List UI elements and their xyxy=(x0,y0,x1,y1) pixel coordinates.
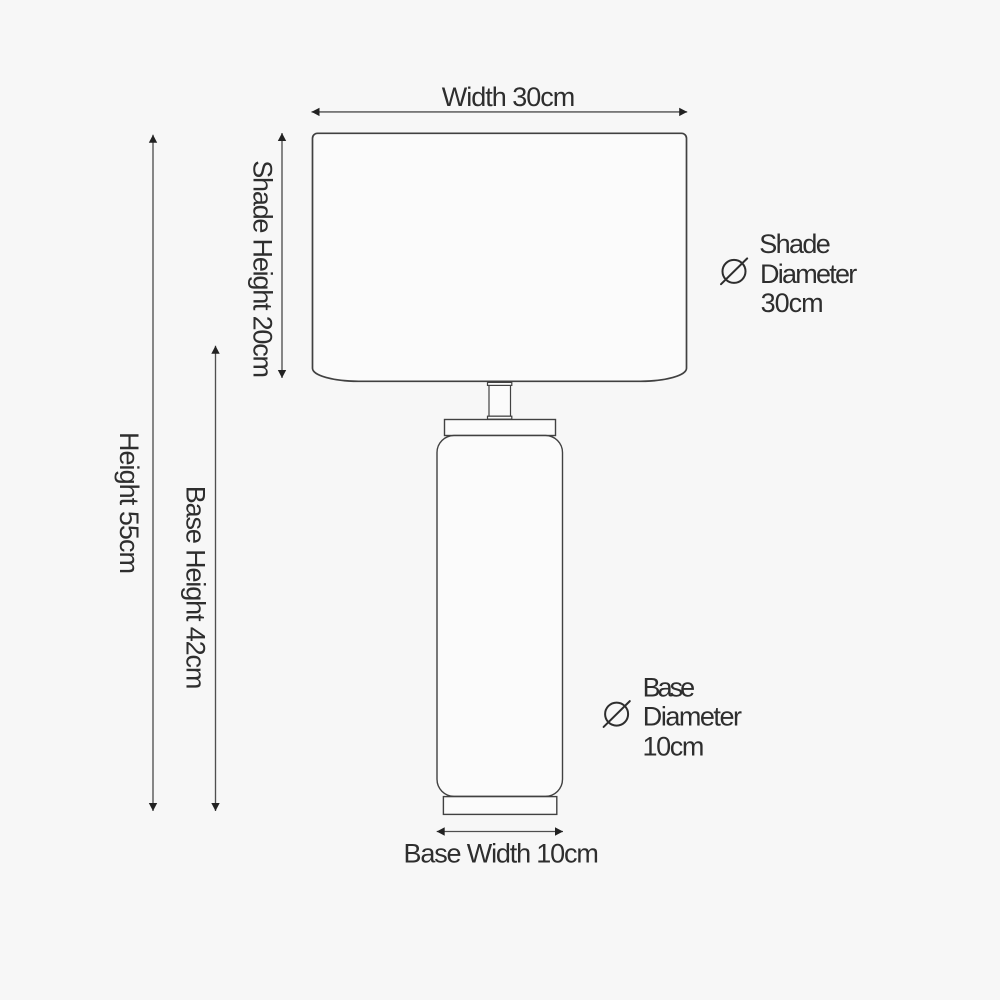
svg-text:Base Width 10cm: Base Width 10cm xyxy=(404,838,598,868)
svg-text:Height 55cm: Height 55cm xyxy=(114,432,144,573)
svg-text:Diameter: Diameter xyxy=(760,259,857,289)
svg-text:30cm: 30cm xyxy=(761,288,823,318)
svg-text:Width 30cm: Width 30cm xyxy=(442,82,575,112)
svg-text:10cm: 10cm xyxy=(643,732,704,762)
svg-text:Shade: Shade xyxy=(759,229,829,259)
svg-text:Base Height 42cm: Base Height 42cm xyxy=(180,486,210,689)
svg-text:Shade Height 20cm: Shade Height 20cm xyxy=(248,160,278,377)
svg-text:Base: Base xyxy=(643,672,695,702)
svg-text:Diameter: Diameter xyxy=(643,702,742,732)
